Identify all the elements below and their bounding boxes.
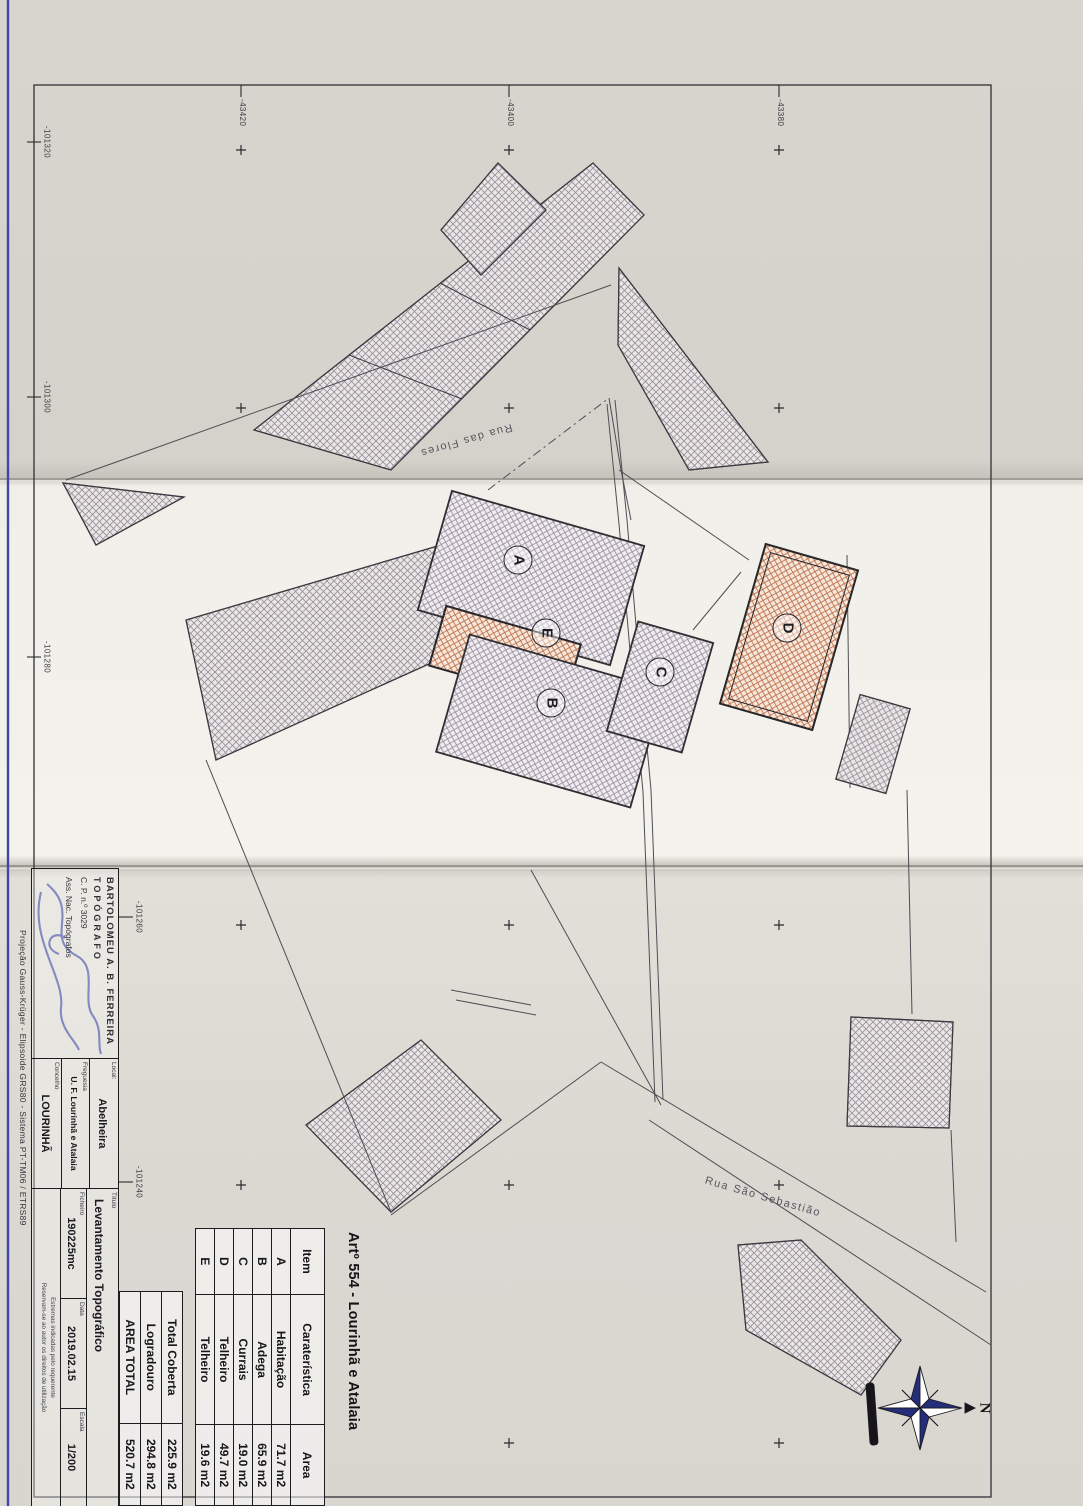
table-row: B Adega 65.9 m2 [253, 1229, 272, 1506]
row-d-area: 49.7 m2 [215, 1425, 234, 1506]
building-label-c: C [646, 658, 675, 687]
building-label-a: A [504, 546, 533, 575]
data-value: 2019.02.15 [65, 1299, 77, 1408]
local-value: Abelheira [96, 1059, 108, 1188]
survey-drawing [0, 0, 1083, 1506]
ficheiro-label: Ficheiro [78, 1192, 85, 1215]
title-block: BARTOLOMEU A. B. FERREIRA TOPÓGRAFO C. P… [31, 868, 119, 1506]
areas-table: Item Caraterística Area A Habitação 71.7… [195, 1228, 325, 1506]
titulo-cell: Título Levantamento Topográfico [86, 1189, 118, 1506]
author-association: Ass. Nac. Topógrafos [64, 877, 74, 958]
author-license: C. P. n.º 3029 [79, 877, 89, 929]
grid-label-p3: -101280 [43, 641, 52, 673]
logradouro-value: 294.8 m2 [141, 1423, 162, 1505]
title-block-author-cell: BARTOLOMEU A. B. FERREIRA TOPÓGRAFO C. P… [32, 869, 118, 1059]
areas-header-item: Item [291, 1229, 325, 1295]
note-line-2: Reservam-se ao autor os direitos de util… [38, 1189, 47, 1506]
grid-label-p4: -101260 [135, 901, 144, 933]
escala-cell: Escala 1/200 [60, 1409, 86, 1506]
row-b-area: 65.9 m2 [253, 1425, 272, 1506]
north-arrowhead [965, 1403, 975, 1413]
row-b-item: B [253, 1229, 272, 1295]
grid-label-p1: -101320 [43, 126, 52, 158]
grid-label-p5: -101240 [135, 1166, 144, 1198]
areas-header-carateristica: Caraterística [291, 1294, 325, 1424]
data-cell: Data 2019.02.15 [60, 1299, 86, 1409]
freguesia-cell: Freguesia U. F. Lourinhã e Atalaia [61, 1059, 89, 1189]
ficheiro-cell: Ficheiro 190225mc [60, 1189, 86, 1299]
concelho-cell: Concelho LOURINHÃ [32, 1059, 61, 1189]
article-heading: Artº 554 - Lourinhã e Atalaia [345, 1232, 361, 1430]
row-e-item: E [196, 1229, 215, 1295]
freguesia-value: U. F. Lourinhã e Atalaia [69, 1059, 79, 1188]
area-total-value: 520.7 m2 [120, 1423, 141, 1505]
table-row: Logradouro 294.8 m2 [141, 1292, 162, 1506]
compass-bar [866, 1383, 878, 1445]
table-row: A Habitação 71.7 m2 [272, 1229, 291, 1506]
total-coberta-value: 225.9 m2 [162, 1423, 183, 1505]
ficheiro-value: 190225mc [65, 1189, 77, 1298]
survey-sheet: -101320 -101300 -101280 -101260 -101240 … [0, 0, 1083, 1506]
row-e-area: 19.6 m2 [196, 1425, 215, 1506]
local-label: Local: [110, 1062, 117, 1079]
row-c-area: 19.0 m2 [234, 1425, 253, 1506]
areas-header-area: Area [291, 1425, 325, 1506]
projection-note: Projeção Gauss-Krüger - Elipsoide GRS80 … [18, 930, 28, 1226]
building-label-b: B [537, 689, 566, 718]
grid-label-p2: -101300 [43, 381, 52, 413]
areas-table-header-row: Item Caraterística Area [291, 1229, 325, 1506]
row-d-name: Telheiro [215, 1294, 234, 1424]
concelho-label: Concelho [53, 1062, 60, 1089]
table-row: C Currais 19.0 m2 [234, 1229, 253, 1506]
author-name: BARTOLOMEU A. B. FERREIRA [104, 877, 115, 1045]
row-e-name: Telheiro [196, 1294, 215, 1424]
escala-value: 1/200 [65, 1409, 77, 1506]
table-row: D Telheiro 49.7 m2 [215, 1229, 234, 1506]
row-c-name: Currais [234, 1294, 253, 1424]
totals-table: Total Coberta 225.9 m2 Logradouro 294.8 … [119, 1291, 183, 1506]
grid-label-m2: -43400 [506, 99, 515, 126]
compass-rose [866, 1366, 975, 1450]
building-c-shape [607, 621, 713, 752]
titulo-label: Título [110, 1192, 117, 1208]
grid-label-m1: -43420 [238, 99, 247, 126]
roads-and-boundaries [66, 285, 991, 1345]
grid-label-m3: -43380 [776, 99, 785, 126]
row-d-item: D [215, 1229, 234, 1295]
building-label-e: E [532, 619, 561, 648]
row-a-name: Habitação [272, 1294, 291, 1424]
row-b-name: Adega [253, 1294, 272, 1424]
row-a-item: A [272, 1229, 291, 1295]
table-row: E Telheiro 19.6 m2 [196, 1229, 215, 1506]
row-a-area: 71.7 m2 [272, 1425, 291, 1506]
building-label-d: D [773, 614, 802, 643]
escala-label: Escala [78, 1412, 85, 1432]
building-shapes [418, 491, 910, 808]
shed-shape [836, 695, 910, 794]
compass-north-label: N [976, 1403, 993, 1414]
local-cell: Local: Abelheira [89, 1059, 118, 1189]
logradouro-label: Logradouro [141, 1292, 162, 1424]
author-title: TOPÓGRAFO [92, 877, 102, 962]
table-row: AREA TOTAL 520.7 m2 [120, 1292, 141, 1506]
table-row: Total Coberta 225.9 m2 [162, 1292, 183, 1506]
notes-cell: Estremas indicadas pelo requerente Reser… [32, 1189, 60, 1506]
total-coberta-label: Total Coberta [162, 1292, 183, 1424]
compass-star [878, 1366, 962, 1450]
titulo-value: Levantamento Topográfico [92, 1189, 106, 1506]
concelho-value: LOURINHÃ [39, 1059, 51, 1188]
row-c-item: C [234, 1229, 253, 1295]
data-label: Data [78, 1302, 85, 1316]
scanned-survey-page: -101320 -101300 -101280 -101260 -101240 … [0, 0, 1083, 1506]
freguesia-label: Freguesia [81, 1062, 88, 1091]
note-line-1: Estremas indicadas pelo requerente [48, 1189, 57, 1506]
area-total-label: AREA TOTAL [120, 1292, 141, 1424]
